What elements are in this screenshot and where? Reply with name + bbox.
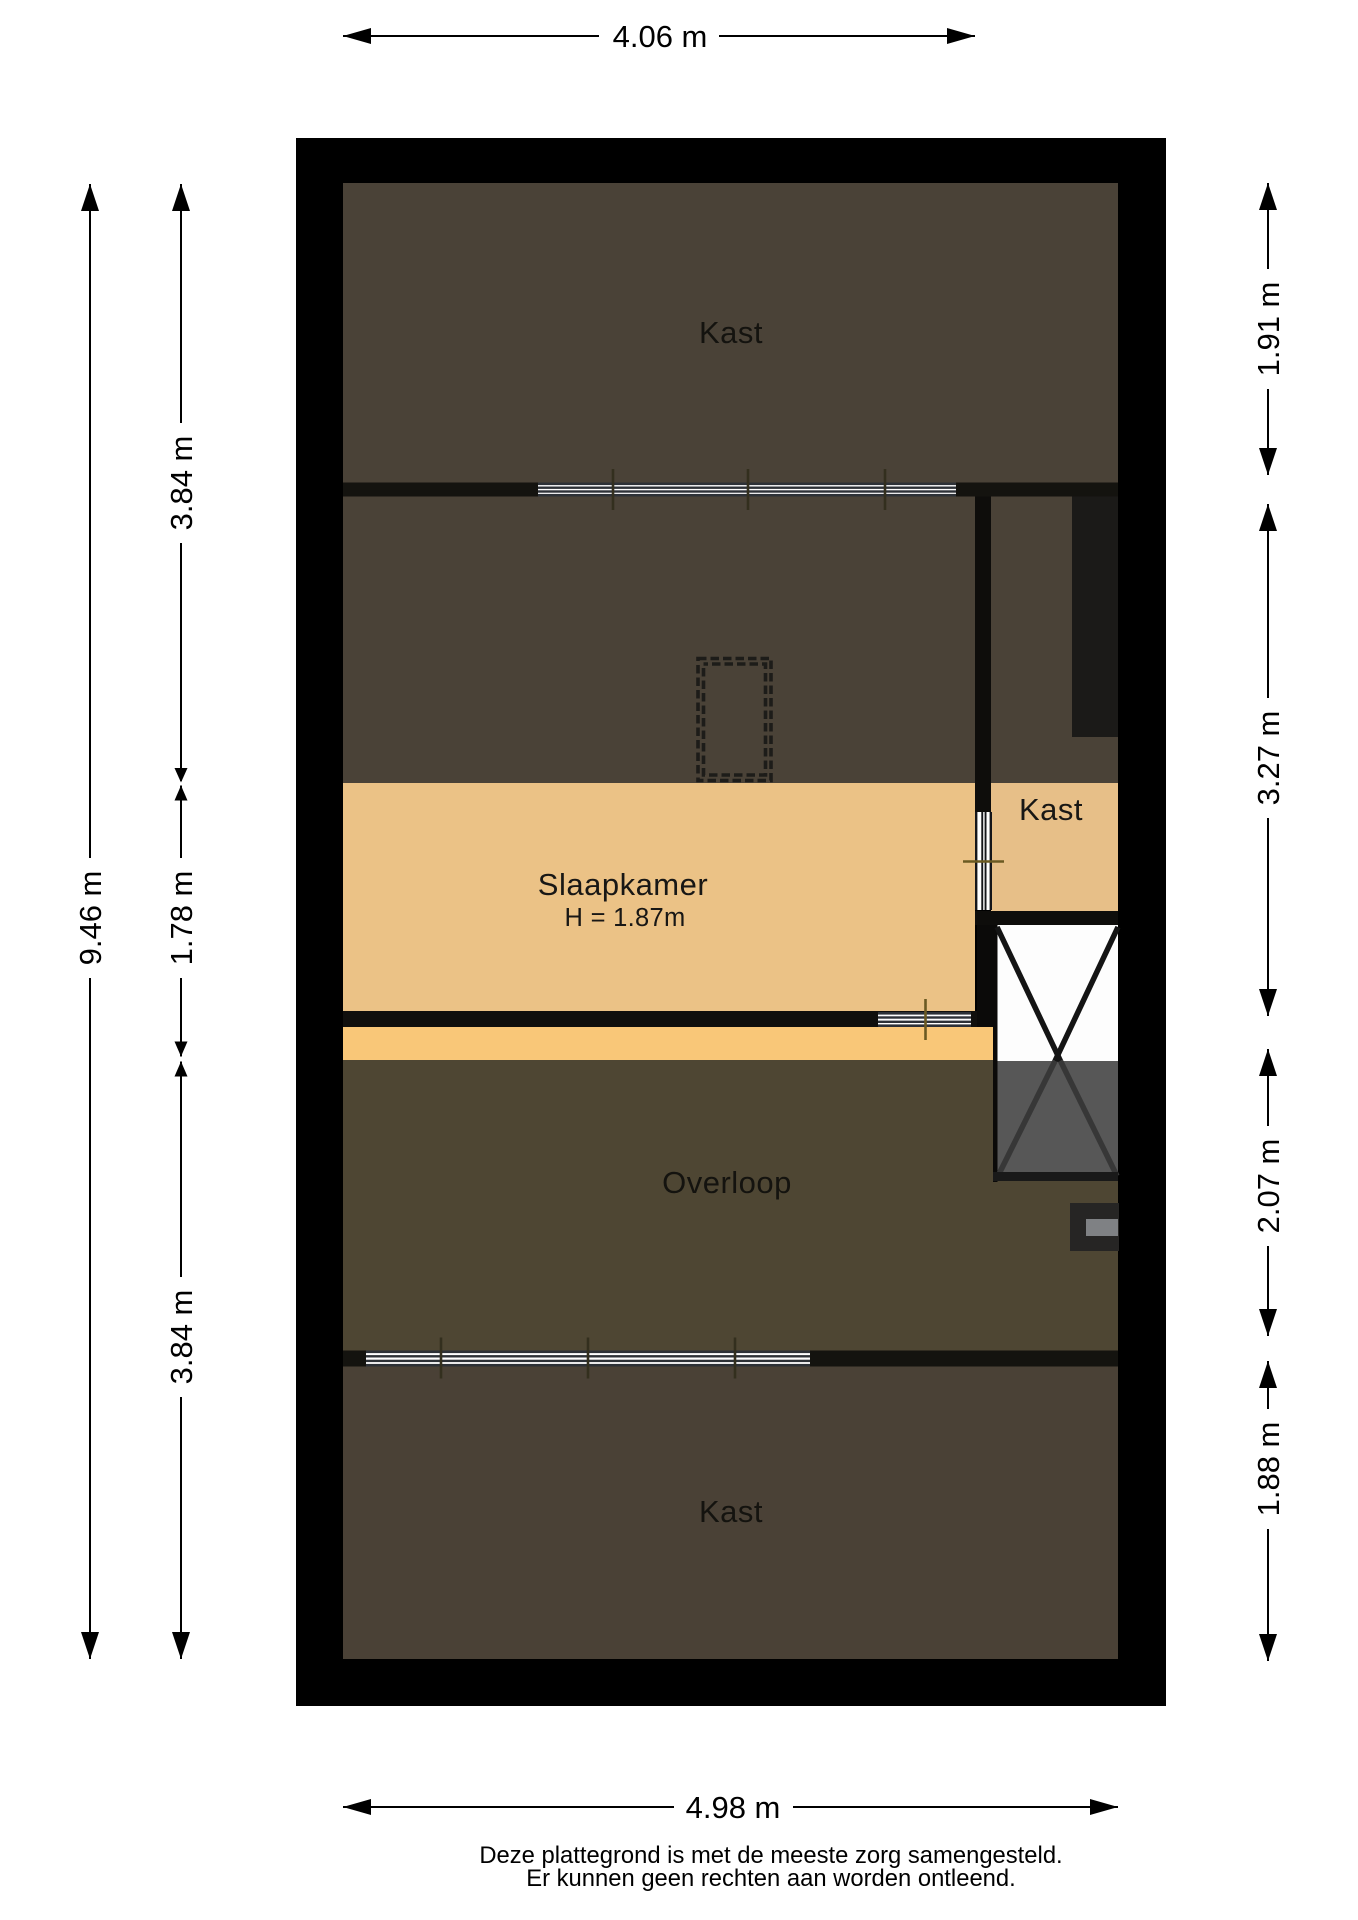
svg-text:3.27 m: 3.27 m (1251, 711, 1286, 806)
svg-text:9.46 m: 9.46 m (73, 871, 108, 966)
svg-text:Overloop: Overloop (662, 1165, 792, 1200)
svg-text:1.88 m: 1.88 m (1251, 1422, 1286, 1517)
svg-text:Kast: Kast (1019, 792, 1083, 827)
svg-text:Kast: Kast (699, 315, 763, 350)
svg-text:4.06 m: 4.06 m (613, 19, 708, 54)
svg-text:1.78 m: 1.78 m (164, 871, 199, 966)
svg-text:2.07 m: 2.07 m (1251, 1139, 1286, 1234)
svg-text:3.84 m: 3.84 m (164, 1290, 199, 1385)
svg-text:H = 1.87m: H = 1.87m (564, 904, 685, 932)
svg-text:1.91 m: 1.91 m (1251, 282, 1286, 377)
svg-text:3.84 m: 3.84 m (164, 436, 199, 531)
svg-text:4.98 m: 4.98 m (686, 1790, 781, 1825)
svg-text:Er kunnen geen rechten aan wor: Er kunnen geen rechten aan worden ontlee… (526, 1865, 1016, 1892)
svg-text:Slaapkamer: Slaapkamer (538, 867, 708, 902)
svg-text:Kast: Kast (699, 1494, 763, 1529)
